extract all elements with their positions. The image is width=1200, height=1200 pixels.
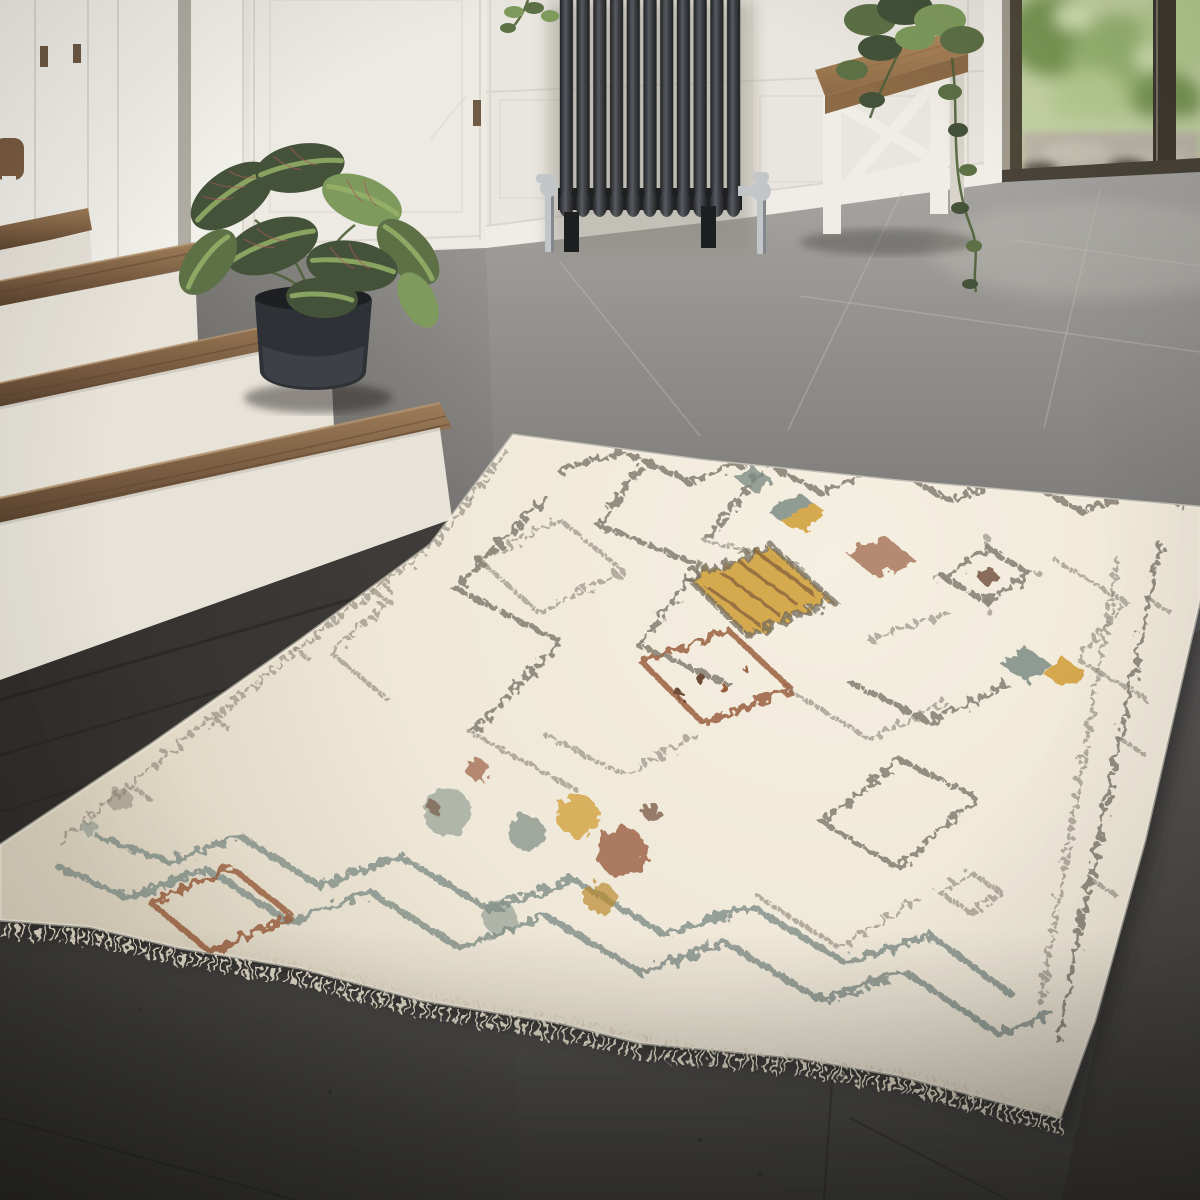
foreground-shade	[0, 930, 1200, 1200]
entryway-photo	[0, 0, 1200, 1200]
